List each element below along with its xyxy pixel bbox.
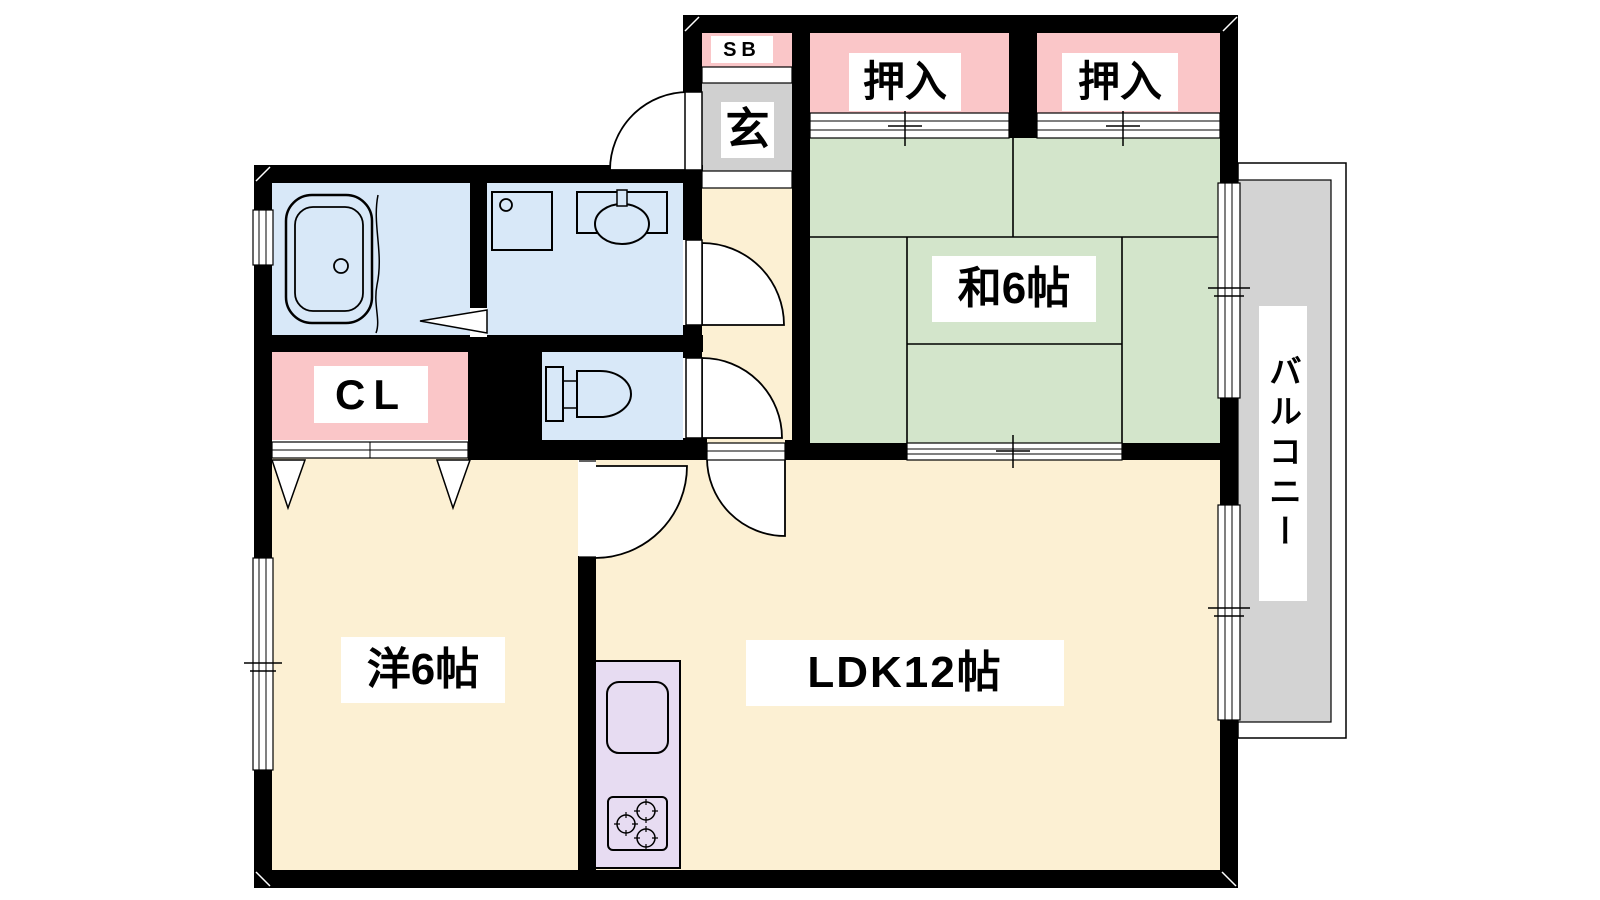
washroom-door-leaf [686, 240, 702, 325]
wall-segment [468, 352, 542, 440]
wall-segment [1009, 33, 1037, 138]
wall-segment [683, 170, 702, 240]
wall-segment [683, 15, 1238, 33]
closet-cl-sliding-door [272, 442, 468, 458]
washroom-floor [487, 183, 683, 335]
entrance-door-leaf [685, 92, 702, 170]
ldk-western-room-doorway [579, 461, 596, 557]
wall-segment [468, 440, 707, 460]
bath-window [253, 210, 273, 265]
wall-segment [1220, 720, 1238, 870]
wall-segment [683, 15, 702, 92]
western-room-label: 洋6帖 [341, 637, 505, 703]
wall-segment [254, 183, 272, 210]
wall-segment [1220, 33, 1238, 183]
floorplan-canvas: SB 玄 押入 押入 和6帖 CL 洋6帖 LDK12帖 バルコニー [0, 0, 1600, 900]
shoe-box-label: SB [711, 36, 773, 63]
kitchen-unit-icon [595, 661, 680, 868]
entrance-door-swing [610, 92, 688, 170]
closet-2-label: 押入 [1062, 53, 1178, 111]
wall-segment [792, 33, 810, 460]
wall-segment [683, 438, 707, 460]
wall-segment [470, 183, 487, 308]
wall-segment [792, 443, 907, 460]
closet-1-label: 押入 [849, 53, 961, 111]
wall-segment [578, 556, 596, 870]
balcony-label: バルコニー [1259, 306, 1307, 601]
wall-segment [254, 870, 1238, 888]
wall-segment [1122, 443, 1238, 460]
genkan-label: 玄 [721, 102, 774, 158]
wall-segment [254, 265, 272, 558]
toilet-door-leaf [686, 358, 702, 438]
ldk-label: LDK12帖 [746, 640, 1064, 706]
closet-cl-label: CL [314, 366, 428, 423]
japanese-room-label: 和6帖 [932, 256, 1096, 322]
wall-segment [683, 325, 702, 358]
wall-segment [254, 335, 703, 352]
